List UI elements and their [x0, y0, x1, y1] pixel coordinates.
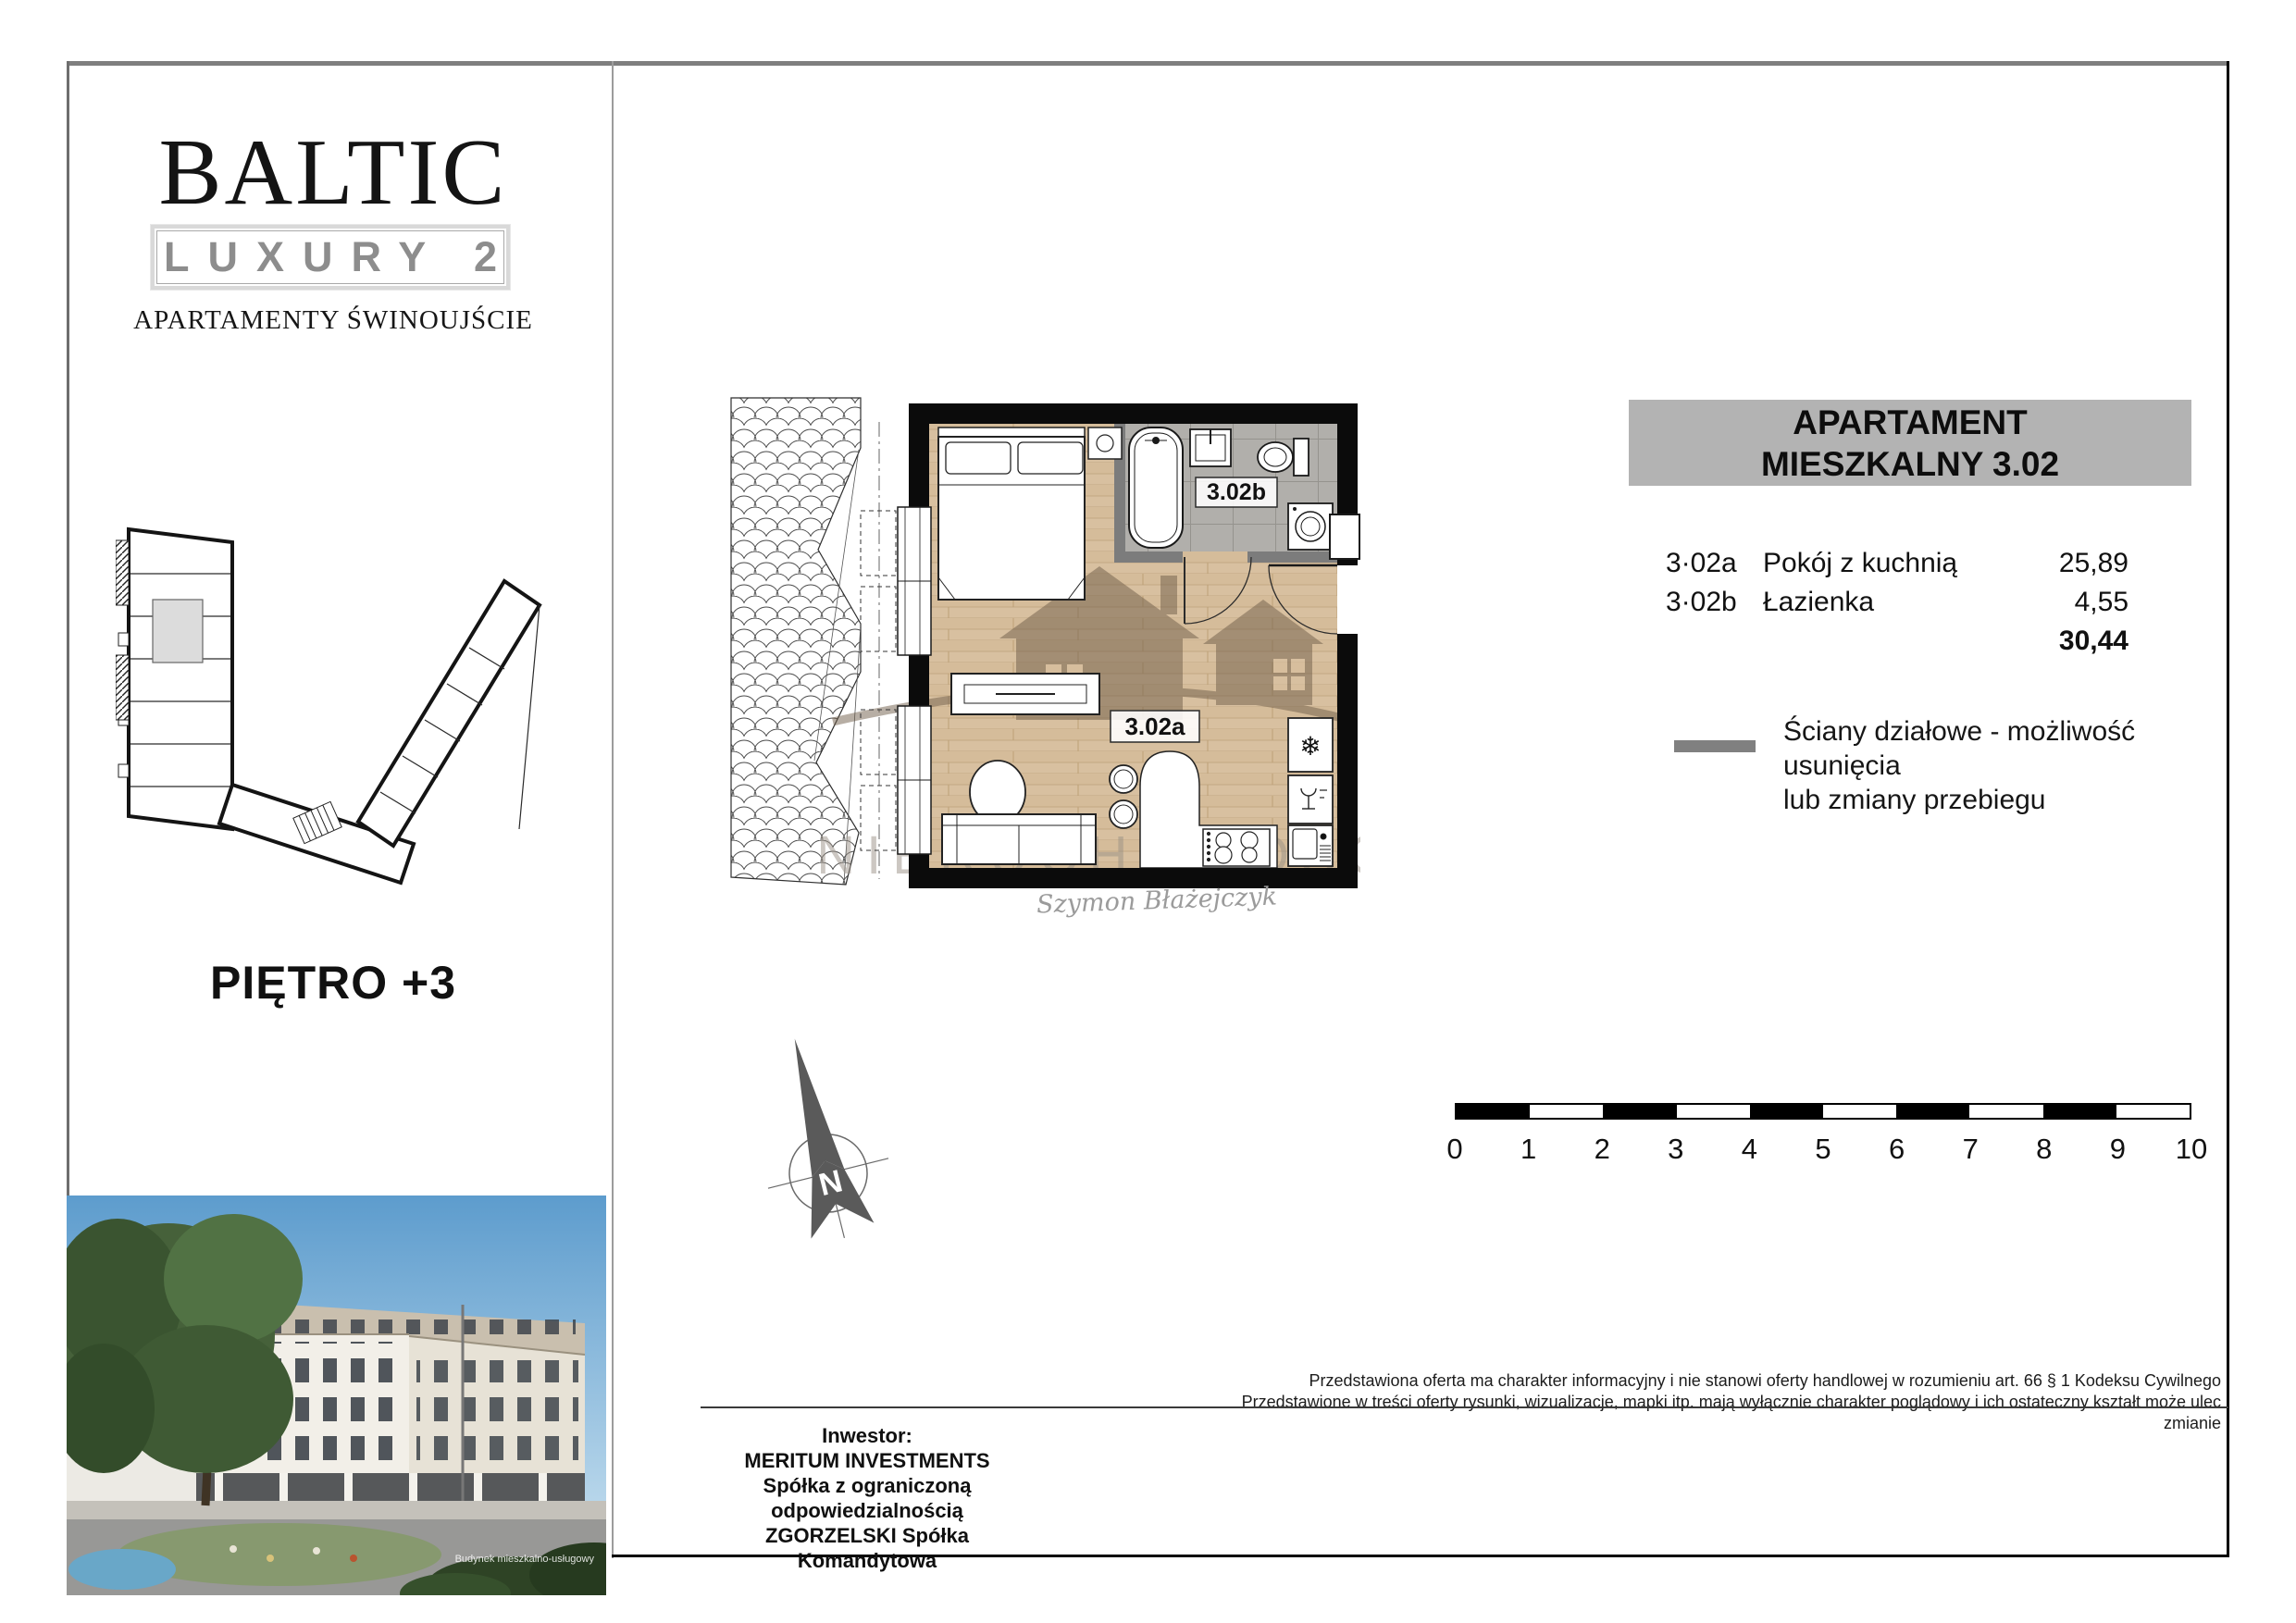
apartment-card-header: APARTAMENT MIESZKALNY 3.02 — [1629, 400, 2191, 486]
scale-label: 7 — [1963, 1133, 1979, 1166]
legend-line2: lub zmiany przebiegu — [1783, 783, 2200, 817]
scale-label: 0 — [1446, 1133, 1462, 1166]
scale-label: 6 — [1889, 1133, 1905, 1166]
legend-wall-swatch — [1674, 740, 1756, 752]
toilet-icon — [1258, 439, 1309, 476]
room-area: 4,55 — [2041, 587, 2128, 618]
area-table: 3·02a Pokój z kuchnią 25,89 3·02b Łazien… — [1666, 544, 2128, 661]
scale-label: 8 — [2036, 1133, 2052, 1166]
investor-block: Inwestor: MERITUM INVESTMENTS Spółka z o… — [701, 1423, 1034, 1573]
svg-text:3.02b: 3.02b — [1207, 479, 1266, 505]
key-plan-highlighted-unit — [153, 600, 203, 663]
brand-tagline: APARTAMENTY ŚWINOUJŚCIE — [83, 305, 583, 336]
nightstand-icon — [1088, 427, 1122, 459]
room-area: 25,89 — [2041, 548, 2128, 579]
sidebar-divider — [612, 61, 614, 1558]
washing-machine-icon — [1288, 503, 1333, 550]
investor-line: MERITUM INVESTMENTS — [701, 1448, 1034, 1473]
entry-opening — [1337, 565, 1360, 634]
wall-niche — [1330, 514, 1359, 559]
legend-line1: Ściany działowe - możliwość usunięcia — [1783, 714, 2200, 783]
photo-caption: Budynek mieszkalno-usługowy — [455, 1554, 595, 1565]
building-photo: Budynek mieszkalno-usługowy — [67, 1196, 606, 1595]
key-plan-balconies — [116, 540, 129, 777]
footer-rule — [701, 1406, 2228, 1408]
brand-subtitle: LUXURY 2 — [164, 233, 515, 281]
window-unit — [861, 507, 931, 655]
brochure-page: BALTIC LUXURY 2 APARTAMENTY ŚWINOUJŚCIE — [0, 0, 2296, 1623]
floor-plan-svg: NIERUCHOMOŚCI — [722, 396, 1360, 905]
svg-text:3.02a: 3.02a — [1124, 712, 1185, 740]
disclaimer-line1: Przedstawiona oferta ma charakter inform… — [1203, 1370, 2221, 1392]
bathroom-sink-icon — [1190, 429, 1231, 466]
room-name: Pokój z kuchnią — [1763, 548, 2041, 579]
room-name: Łazienka — [1763, 587, 2041, 618]
investor-heading: Inwestor: — [701, 1423, 1034, 1448]
kitchen-sink-icon — [1288, 825, 1333, 866]
north-arrow-icon: N — [740, 1035, 925, 1247]
apartment-card-title-line2: MIESZKALNY 3.02 — [1761, 443, 2059, 485]
fridge-icon: ❄ — [1288, 718, 1333, 772]
room-a-label: 3.02a — [1111, 711, 1199, 742]
scale-label: 3 — [1668, 1133, 1683, 1166]
scale-label: 1 — [1520, 1133, 1536, 1166]
stove-icon — [1203, 829, 1270, 866]
scale-label: 4 — [1742, 1133, 1757, 1166]
bathtub-icon — [1129, 427, 1183, 548]
scale-bar: 0 1 2 3 4 5 6 7 8 9 10 — [1455, 1103, 2191, 1168]
scale-label: 10 — [2176, 1133, 2207, 1166]
scale-label: 9 — [2110, 1133, 2126, 1166]
sofa-icon — [942, 814, 1096, 864]
investor-line: Spółka z ograniczoną odpowiedzialnością — [701, 1473, 1034, 1523]
investor-line: ZGORZELSKI Spółka Komandytowa — [701, 1523, 1034, 1573]
table-row: 3·02a Pokój z kuchnią 25,89 — [1666, 544, 2128, 583]
legend-text: Ściany działowe - możliwość usunięcia lu… — [1783, 714, 2200, 817]
frame-top-border — [67, 61, 2228, 66]
dresser-icon — [951, 674, 1099, 714]
disclaimer-line2: Przedstawione w treści oferty rysunki, w… — [1203, 1392, 2221, 1434]
room-code: 3·02a — [1666, 548, 1763, 579]
dishwasher-icon — [1288, 775, 1333, 824]
scale-label: 2 — [1595, 1133, 1610, 1166]
apartment-card-title-line1: APARTAMENT — [1793, 402, 2028, 443]
floor-label: PIĘTRO +3 — [139, 956, 527, 1010]
table-row: 3·02b Łazienka 4,55 — [1666, 583, 2128, 622]
scale-bar-segments — [1455, 1103, 2191, 1120]
frame-right-border — [2227, 61, 2229, 1557]
roof-hatch-area — [731, 398, 861, 885]
bed-icon — [938, 427, 1085, 600]
total-area: 30,44 — [1666, 622, 2128, 661]
room-b-label: 3.02b — [1196, 477, 1277, 507]
disclaimer: Przedstawiona oferta ma charakter inform… — [1203, 1370, 2221, 1434]
brand-title: BALTIC — [93, 118, 574, 227]
room-code: 3·02b — [1666, 587, 1763, 618]
key-plan-svg — [116, 514, 551, 896]
scale-label: 5 — [1815, 1133, 1831, 1166]
freezer-icon: ❄ — [1299, 732, 1321, 761]
brand-subtitle-box: LUXURY 2 — [151, 225, 510, 290]
